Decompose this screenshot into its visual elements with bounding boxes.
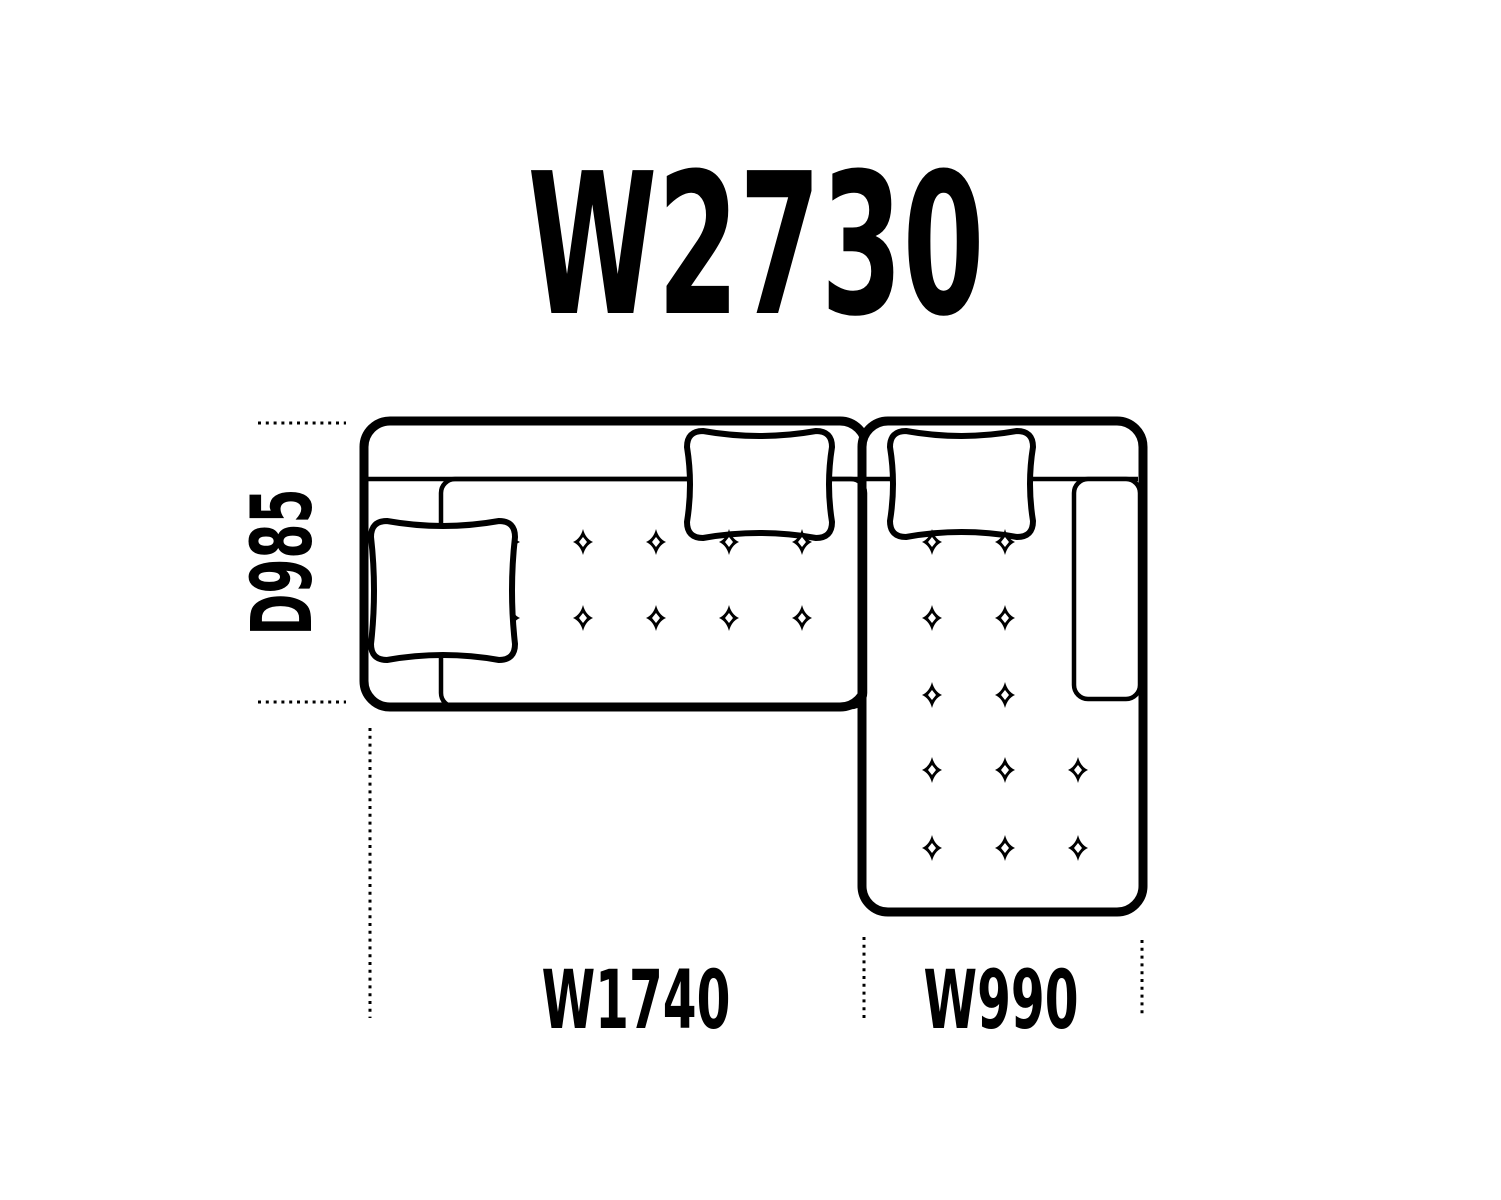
sofa-floorplan-svg: W2730 D985 W1740 W990 — [0, 0, 1501, 1200]
chaise-section-width-label: W990 — [923, 953, 1078, 1048]
back-pillow-chaise — [890, 431, 1033, 537]
overall-width-title: W2730 — [528, 132, 985, 360]
chaise-armrest-panel-outline — [1074, 479, 1140, 699]
left-section-width-label: W1740 — [542, 953, 731, 1048]
back-pillow-main — [687, 431, 832, 538]
sofa-dimension-diagram: W2730 D985 W1740 W990 — [0, 0, 1501, 1200]
depth-dimension-label: D985 — [235, 488, 332, 635]
armrest-pillow-left — [371, 521, 515, 660]
